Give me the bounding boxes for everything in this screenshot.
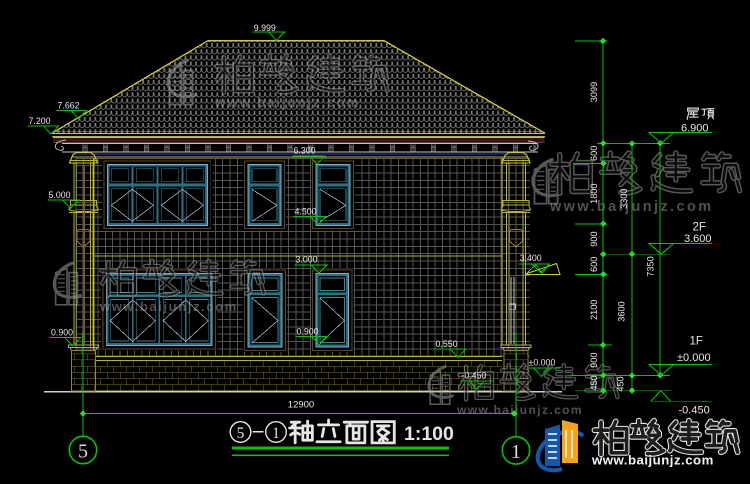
svg-text:1:100: 1:100 <box>404 423 454 445</box>
svg-text:±0.000: ±0.000 <box>677 352 711 364</box>
svg-text:2F: 2F <box>693 222 706 234</box>
svg-text:450: 450 <box>616 376 626 391</box>
svg-text:5: 5 <box>78 441 88 463</box>
svg-text:7350: 7350 <box>646 256 656 276</box>
svg-text:9.999: 9.999 <box>254 23 276 33</box>
svg-text:www.baijunjz.com: www.baijunjz.com <box>214 95 360 110</box>
svg-text:900: 900 <box>589 353 599 368</box>
svg-text:2100: 2100 <box>589 300 599 320</box>
svg-text:www.baijunjz.com: www.baijunjz.com <box>591 453 714 468</box>
svg-text:6.300: 6.300 <box>294 145 316 155</box>
svg-text:450: 450 <box>589 375 599 390</box>
svg-text:12900: 12900 <box>288 399 314 410</box>
svg-text:-0.450: -0.450 <box>679 405 710 417</box>
svg-text:3600: 3600 <box>617 301 627 321</box>
svg-text:6.900: 6.900 <box>681 123 709 135</box>
svg-text:0.900: 0.900 <box>51 327 73 337</box>
svg-text:±0.000: ±0.000 <box>529 358 556 368</box>
svg-text:3.600: 3.600 <box>684 233 712 245</box>
svg-text:0.550: 0.550 <box>436 339 458 349</box>
svg-text:600: 600 <box>589 257 599 272</box>
svg-text:3.000: 3.000 <box>296 255 318 265</box>
svg-text:1: 1 <box>272 425 280 442</box>
svg-text:www.baijunjz.com: www.baijunjz.com <box>99 299 238 314</box>
svg-text:7.662: 7.662 <box>58 100 80 110</box>
svg-text:3.400: 3.400 <box>520 253 542 263</box>
svg-text:0.900: 0.900 <box>297 326 319 336</box>
svg-text:1: 1 <box>511 441 521 463</box>
svg-text:900: 900 <box>589 231 599 246</box>
svg-text:5: 5 <box>237 425 245 442</box>
svg-text:3300: 3300 <box>619 188 629 208</box>
svg-text:1F: 1F <box>690 336 703 348</box>
svg-text:www.baijunjz.com: www.baijunjz.com <box>456 403 583 417</box>
svg-text:3099: 3099 <box>589 82 599 102</box>
svg-text:1800: 1800 <box>589 183 599 203</box>
svg-text:-0.450: -0.450 <box>462 371 487 381</box>
svg-text:5.000: 5.000 <box>49 190 71 200</box>
svg-text:www.baijunjz.com: www.baijunjz.com <box>549 199 714 215</box>
svg-text:600: 600 <box>589 146 599 161</box>
svg-text:7.200: 7.200 <box>29 116 51 126</box>
svg-text:4.500: 4.500 <box>295 206 317 216</box>
